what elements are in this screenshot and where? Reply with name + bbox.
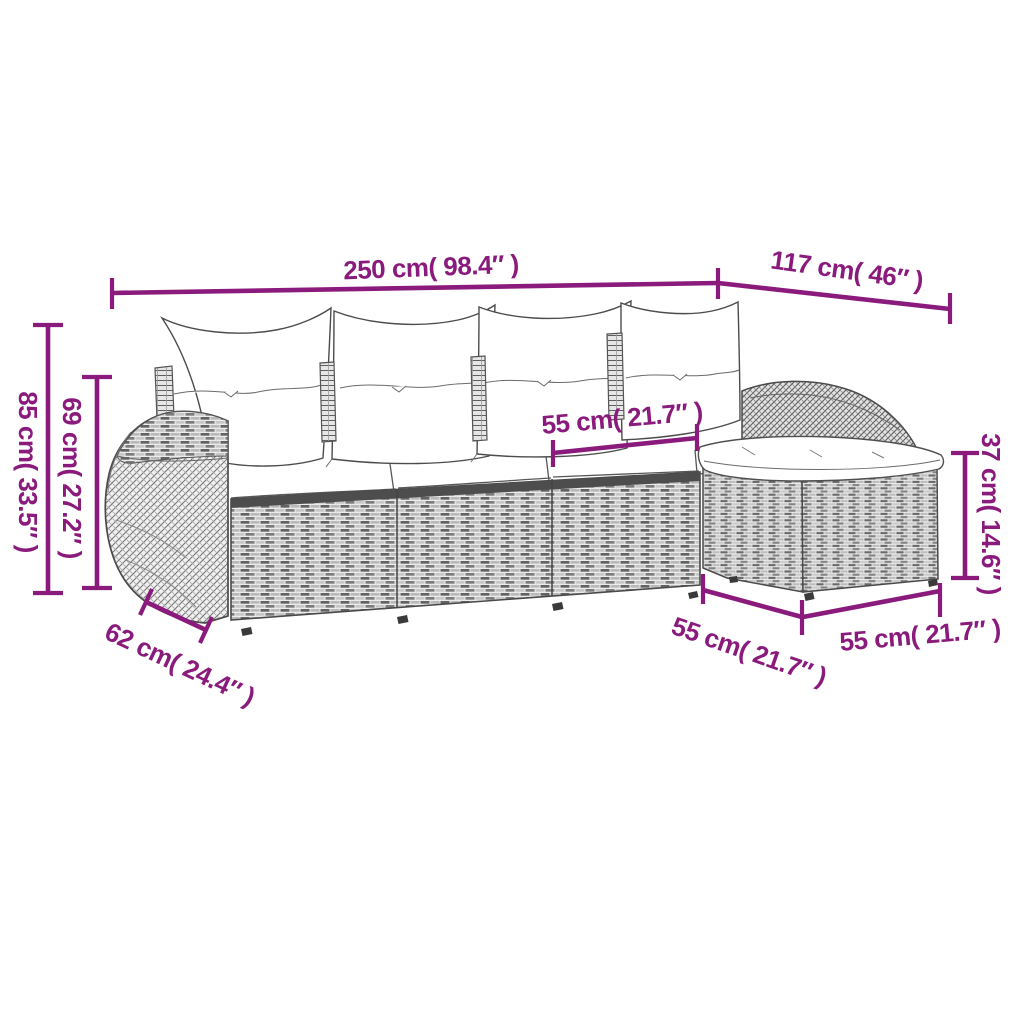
- dim-ottoman-height: [951, 453, 979, 578]
- ottoman: [698, 436, 943, 592]
- dim-label-total-height: 85 cm( 33.5″ ): [15, 391, 41, 553]
- dim-line: [112, 283, 718, 293]
- foot: [688, 591, 699, 599]
- dim-line: [703, 590, 802, 617]
- armrest-top-weave: [117, 411, 228, 463]
- frame-post: [320, 362, 336, 442]
- ottoman-left-face: [703, 465, 803, 592]
- foot: [552, 602, 564, 611]
- ottoman-right-face: [802, 466, 938, 592]
- foot: [804, 592, 815, 601]
- foot: [397, 615, 409, 624]
- foot: [241, 627, 253, 636]
- dim-label-back-height: 69 cm( 27.2″ ): [59, 397, 85, 559]
- sofa-drawing: [105, 301, 943, 636]
- frame-post: [471, 356, 487, 441]
- dim-label-ottoman-height: 37 cm( 14.6″ ): [978, 433, 1004, 595]
- front-panel: [231, 472, 700, 620]
- dim-line: [803, 591, 940, 617]
- sofa-illustration: [0, 0, 1024, 1024]
- left-armrest: [105, 411, 228, 623]
- dim-label-overall-width: 250 cm( 98.4″ ): [343, 251, 519, 284]
- product-dimension-diagram: 250 cm( 98.4″ ) 117 cm( 46″ ) 85 cm( 33.…: [0, 0, 1024, 1024]
- foot: [729, 576, 738, 583]
